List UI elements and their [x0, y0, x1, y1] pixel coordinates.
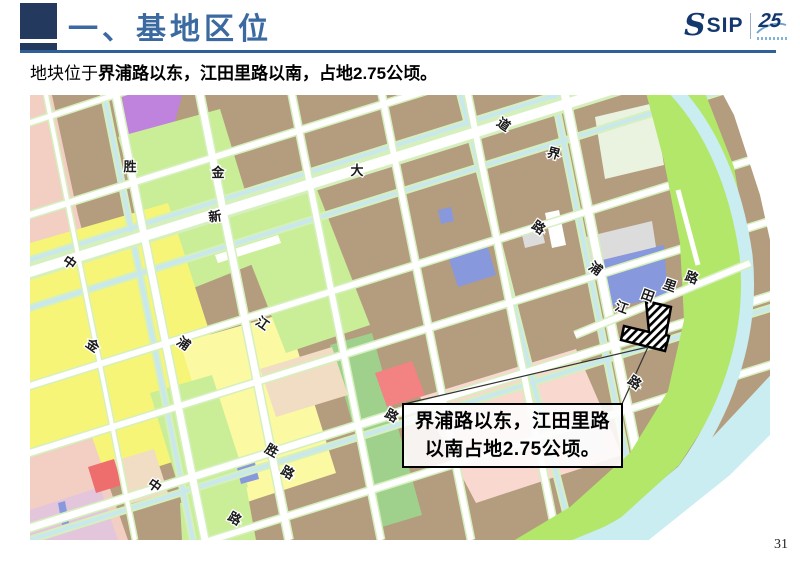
sip-logo-text: SIP: [707, 14, 744, 38]
sip-logo: S SIP 25: [684, 7, 790, 45]
callout-line1: 界浦路以东，江田里路: [415, 408, 610, 436]
road-label: 新: [208, 208, 223, 226]
logo-divider: [750, 13, 751, 39]
anniversary-microtext: [757, 37, 787, 40]
anniversary-number: 25: [757, 10, 782, 33]
slide: 一、基地区位 S SIP 25 地块位于界浦路以东，江田里路以南，占地2.75公…: [0, 0, 800, 565]
road-label: 胜: [123, 160, 136, 175]
page-title: 一、基地区位: [68, 4, 272, 48]
road-label: 金: [210, 165, 225, 181]
anniversary-25-mark: 25: [756, 9, 790, 43]
subtitle: 地块位于界浦路以东，江田里路以南，占地2.75公顷。: [30, 59, 437, 84]
map-graphic: 胜金新大道界路浦江田里路路中金浦江胜路中路路: [30, 95, 770, 540]
title-decoration-square: [20, 3, 57, 39]
header-rule: [20, 50, 776, 53]
subtitle-bold: 界浦路以东，江田里路以南，占地2.75公顷。: [98, 64, 437, 83]
sip-s-icon: S: [684, 11, 706, 41]
location-map: 胜金新大道界路浦江田里路路中金浦江胜路中路路 界浦路以东，江田里路 以南占地2.…: [30, 95, 770, 540]
page-number: 31: [774, 537, 788, 553]
site-callout: 界浦路以东，江田里路 以南占地2.75公顷。: [402, 403, 623, 468]
subtitle-prefix: 地块位于: [30, 64, 98, 83]
road-label: 大: [350, 163, 363, 179]
callout-line2: 以南占地2.75公顷。: [425, 436, 600, 464]
